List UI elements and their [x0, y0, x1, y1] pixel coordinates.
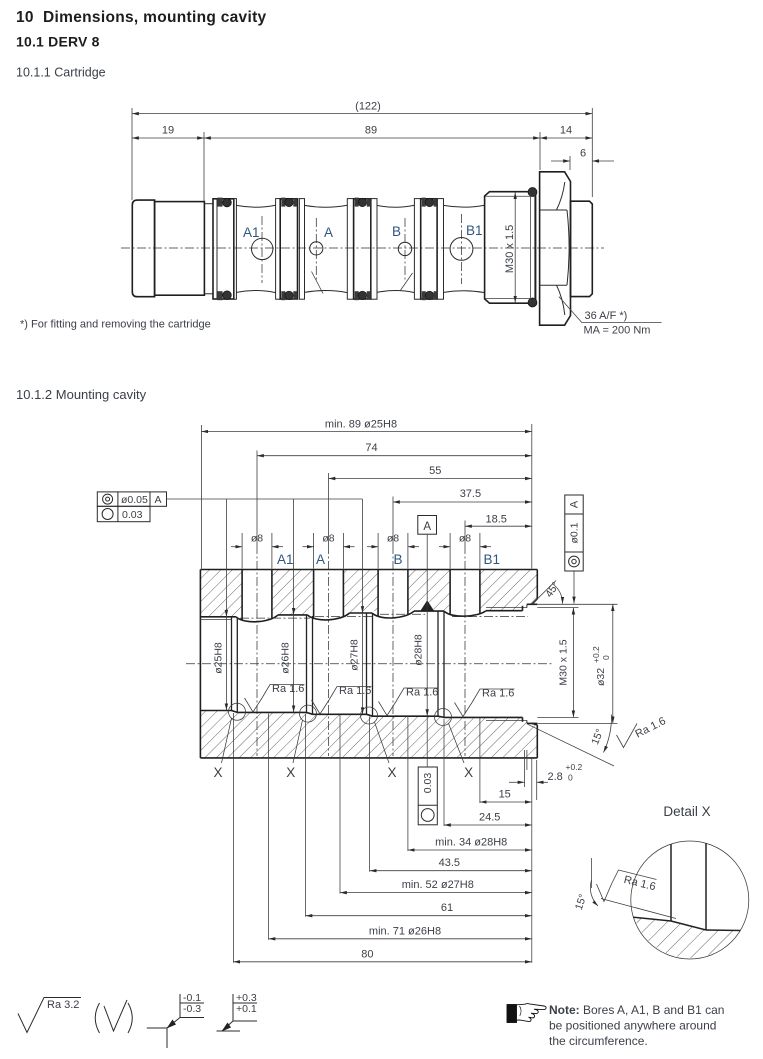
svg-text:19: 19 [162, 125, 174, 137]
svg-text:X: X [286, 765, 295, 780]
svg-text:X: X [387, 765, 396, 780]
svg-text:B1: B1 [466, 223, 483, 238]
svg-text:Ra 1.6: Ra 1.6 [482, 688, 514, 700]
svg-text:A: A [316, 552, 325, 567]
svg-text:36 A/F *): 36 A/F *) [585, 310, 628, 322]
svg-text:X: X [464, 765, 473, 780]
svg-text:Ra 1.6: Ra 1.6 [272, 683, 304, 695]
svg-text:M30 x 1.5: M30 x 1.5 [558, 639, 570, 685]
svg-text:0.03: 0.03 [122, 509, 143, 521]
svg-text:A: A [569, 500, 581, 508]
svg-text:min. 89 ø25H8: min. 89 ø25H8 [325, 419, 397, 431]
svg-text:+0.1: +0.1 [236, 1003, 257, 1015]
svg-text:61: 61 [441, 902, 453, 914]
svg-text:45°: 45° [543, 580, 562, 600]
svg-text:10.1.1 Cartridge: 10.1.1 Cartridge [16, 66, 106, 80]
svg-text:B: B [392, 224, 401, 239]
svg-text:+0.2: +0.2 [566, 762, 583, 772]
svg-text:the circumference.: the circumference. [549, 1034, 648, 1048]
svg-text:ø8: ø8 [251, 533, 263, 545]
svg-text:Ra 1.6: Ra 1.6 [339, 685, 371, 697]
svg-text:10.1.2 Mounting cavity: 10.1.2 Mounting cavity [16, 387, 147, 402]
svg-text:2.8: 2.8 [548, 771, 563, 783]
svg-text:ø27H8: ø27H8 [349, 639, 361, 671]
svg-text:ø0.1: ø0.1 [569, 522, 581, 543]
svg-text:be positioned anywhere around: be positioned anywhere around [549, 1019, 716, 1033]
svg-text:min. 71 ø26H8: min. 71 ø26H8 [369, 925, 441, 937]
svg-text:10 Dimensions, mounting cavit: 10 Dimensions, mounting cavity [16, 9, 267, 26]
svg-text:Detail X: Detail X [663, 804, 710, 819]
svg-text:89: 89 [365, 125, 377, 137]
svg-text:ø0.05: ø0.05 [121, 494, 148, 506]
svg-text:min. 34 ø28H8: min. 34 ø28H8 [435, 837, 507, 849]
svg-text:ø8: ø8 [459, 533, 471, 545]
svg-text:74: 74 [365, 442, 377, 454]
svg-text:15°: 15° [573, 893, 589, 912]
svg-text:43.5: 43.5 [439, 857, 460, 869]
svg-text:A1: A1 [277, 552, 294, 567]
svg-text:ø32: ø32 [595, 668, 607, 686]
svg-text:ø26H8: ø26H8 [280, 642, 292, 674]
svg-text:10.1 DERV 8: 10.1 DERV 8 [16, 34, 100, 50]
svg-text:0: 0 [601, 655, 611, 660]
svg-text:min. 52 ø27H8: min. 52 ø27H8 [402, 879, 474, 891]
svg-text:18.5: 18.5 [485, 513, 506, 525]
svg-text:Ra 1.6: Ra 1.6 [623, 874, 657, 893]
svg-text:ø28H8: ø28H8 [413, 634, 425, 666]
svg-text:A1: A1 [243, 225, 260, 240]
svg-text:A: A [423, 521, 431, 533]
svg-text:B1: B1 [484, 552, 501, 567]
svg-text:0: 0 [568, 773, 573, 783]
svg-text:6: 6 [580, 148, 586, 160]
svg-text:80: 80 [361, 948, 373, 960]
svg-text:A: A [324, 225, 333, 240]
svg-text:Ra 1.6: Ra 1.6 [633, 715, 667, 740]
svg-text:0.03: 0.03 [422, 773, 434, 794]
svg-text:ø8: ø8 [322, 533, 334, 545]
svg-text:A: A [155, 494, 162, 506]
svg-text:B: B [394, 552, 403, 567]
svg-text:ø8: ø8 [387, 533, 399, 545]
svg-text:+0.2: +0.2 [591, 646, 601, 663]
svg-text:M30 x 1.5: M30 x 1.5 [504, 225, 516, 273]
svg-text:14: 14 [560, 125, 572, 137]
svg-text:37.5: 37.5 [460, 488, 481, 500]
svg-text:15: 15 [499, 789, 511, 801]
svg-text:*) For fitting and removing th: *) For fitting and removing the cartridg… [20, 319, 211, 331]
svg-text:Note: Bores A, A1, B and B1 ca: Note: Bores A, A1, B and B1 can [549, 1003, 724, 1017]
svg-text:24.5: 24.5 [479, 812, 500, 824]
svg-text:15°: 15° [589, 727, 606, 746]
svg-text:MA = 200 Nm: MA = 200 Nm [584, 325, 651, 337]
svg-text:-0.3: -0.3 [183, 1003, 201, 1015]
svg-text:ø25H8: ø25H8 [213, 642, 225, 674]
svg-text:(122): (122) [355, 101, 381, 113]
svg-text:55: 55 [429, 465, 441, 477]
svg-text:Ra 1.6: Ra 1.6 [406, 687, 438, 699]
svg-text:Ra 3.2: Ra 3.2 [47, 999, 79, 1011]
svg-text:X: X [213, 765, 222, 780]
